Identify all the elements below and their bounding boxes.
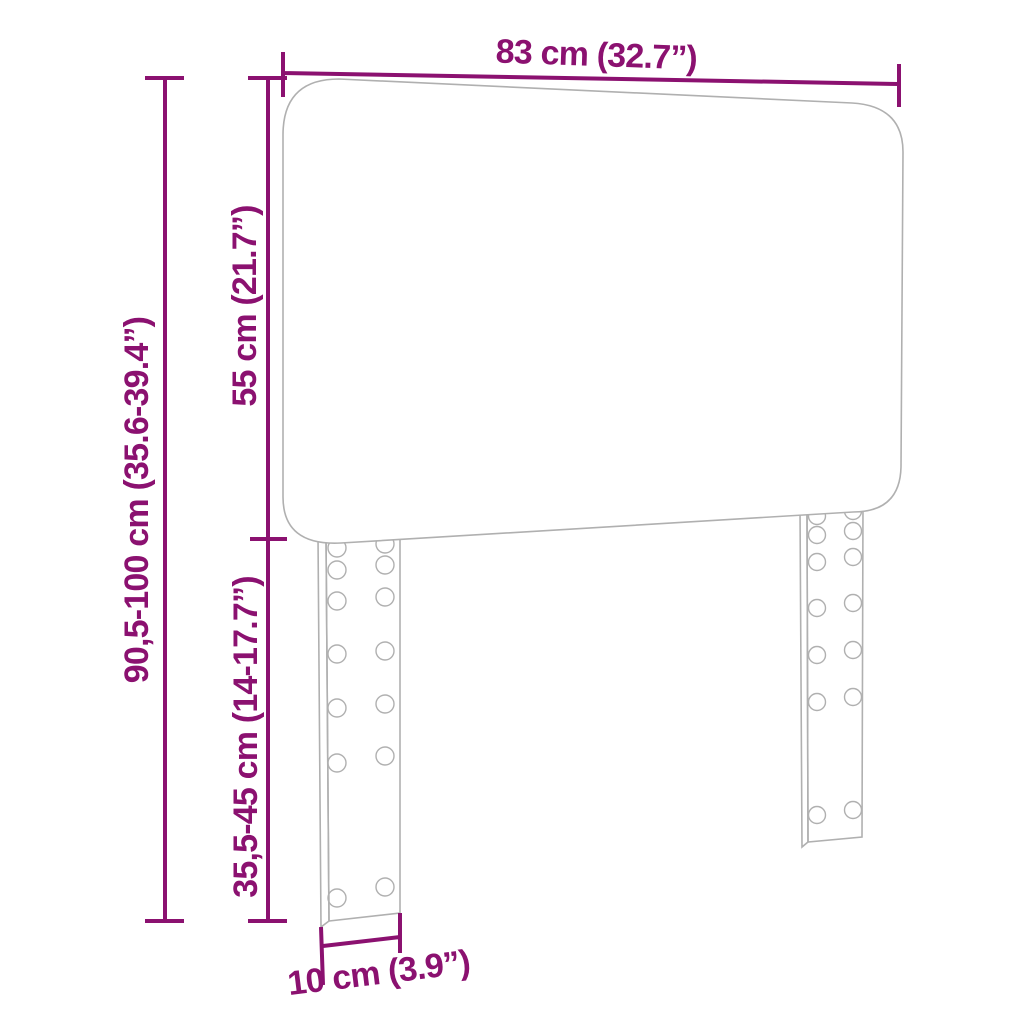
headboard-panel — [283, 79, 903, 543]
right-leg — [800, 503, 863, 848]
left-leg — [318, 531, 400, 927]
total-height-dimension-label: 90,5-100 cm (35.6-39.4”) — [118, 317, 156, 683]
dimension-diagram: 83 cm (32.7”) 90,5-100 cm (35.6-39.4”) 5… — [0, 0, 1024, 1024]
width-dimension-label: 83 cm (32.7”) — [495, 33, 697, 78]
leg-height-dimension-label: 35,5-45 cm (14-17.7”) — [227, 576, 265, 898]
headboard-outline — [283, 79, 903, 927]
left-leg-mounting-holes — [328, 535, 394, 907]
right-leg-mounting-holes — [809, 503, 862, 824]
leg-width-dimension-label: 10 cm (3.9”) — [285, 943, 471, 1003]
headboard-dimension-drawing: 83 cm (32.7”) 90,5-100 cm (35.6-39.4”) 5… — [0, 0, 1024, 1024]
panel-height-dimension-label: 55 cm (21.7”) — [226, 205, 264, 406]
